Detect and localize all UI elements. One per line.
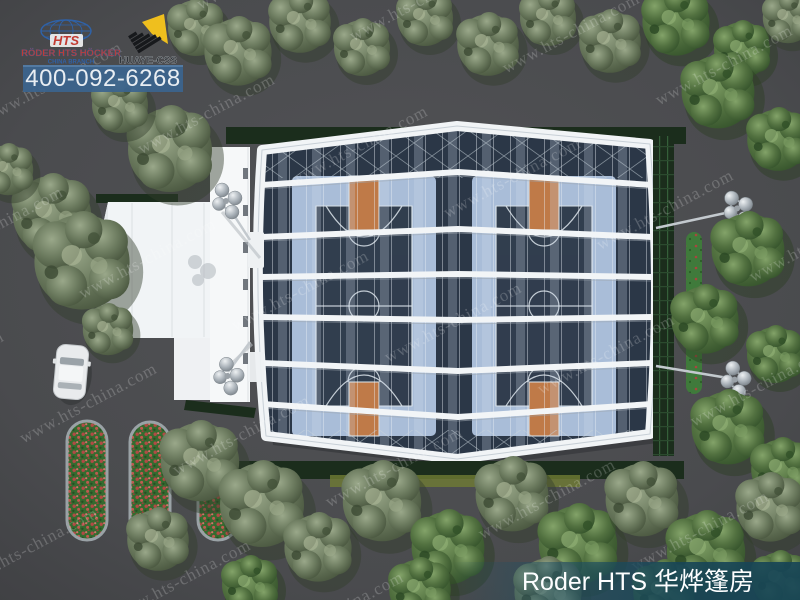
connector-passage-upper	[248, 232, 264, 268]
hts-logo-text: HTS	[53, 33, 79, 48]
rendering-canvas: www.hts-china.com www.hts-china.com www.…	[0, 0, 800, 600]
brand-title: RÖDER HTS HÖCKER	[21, 48, 121, 59]
caption-bar: Roder HTS 华烨篷房	[450, 562, 800, 600]
phone-banner: 400-092-6268	[23, 65, 183, 92]
connector-passage-lower	[248, 352, 264, 382]
scene: www.hts-china.com www.hts-china.com www.…	[0, 0, 800, 600]
hedge-right-trellis	[653, 136, 674, 456]
phone-number: 400-092-6268	[25, 65, 180, 92]
caption-text: Roder HTS 华烨篷房	[522, 568, 754, 596]
